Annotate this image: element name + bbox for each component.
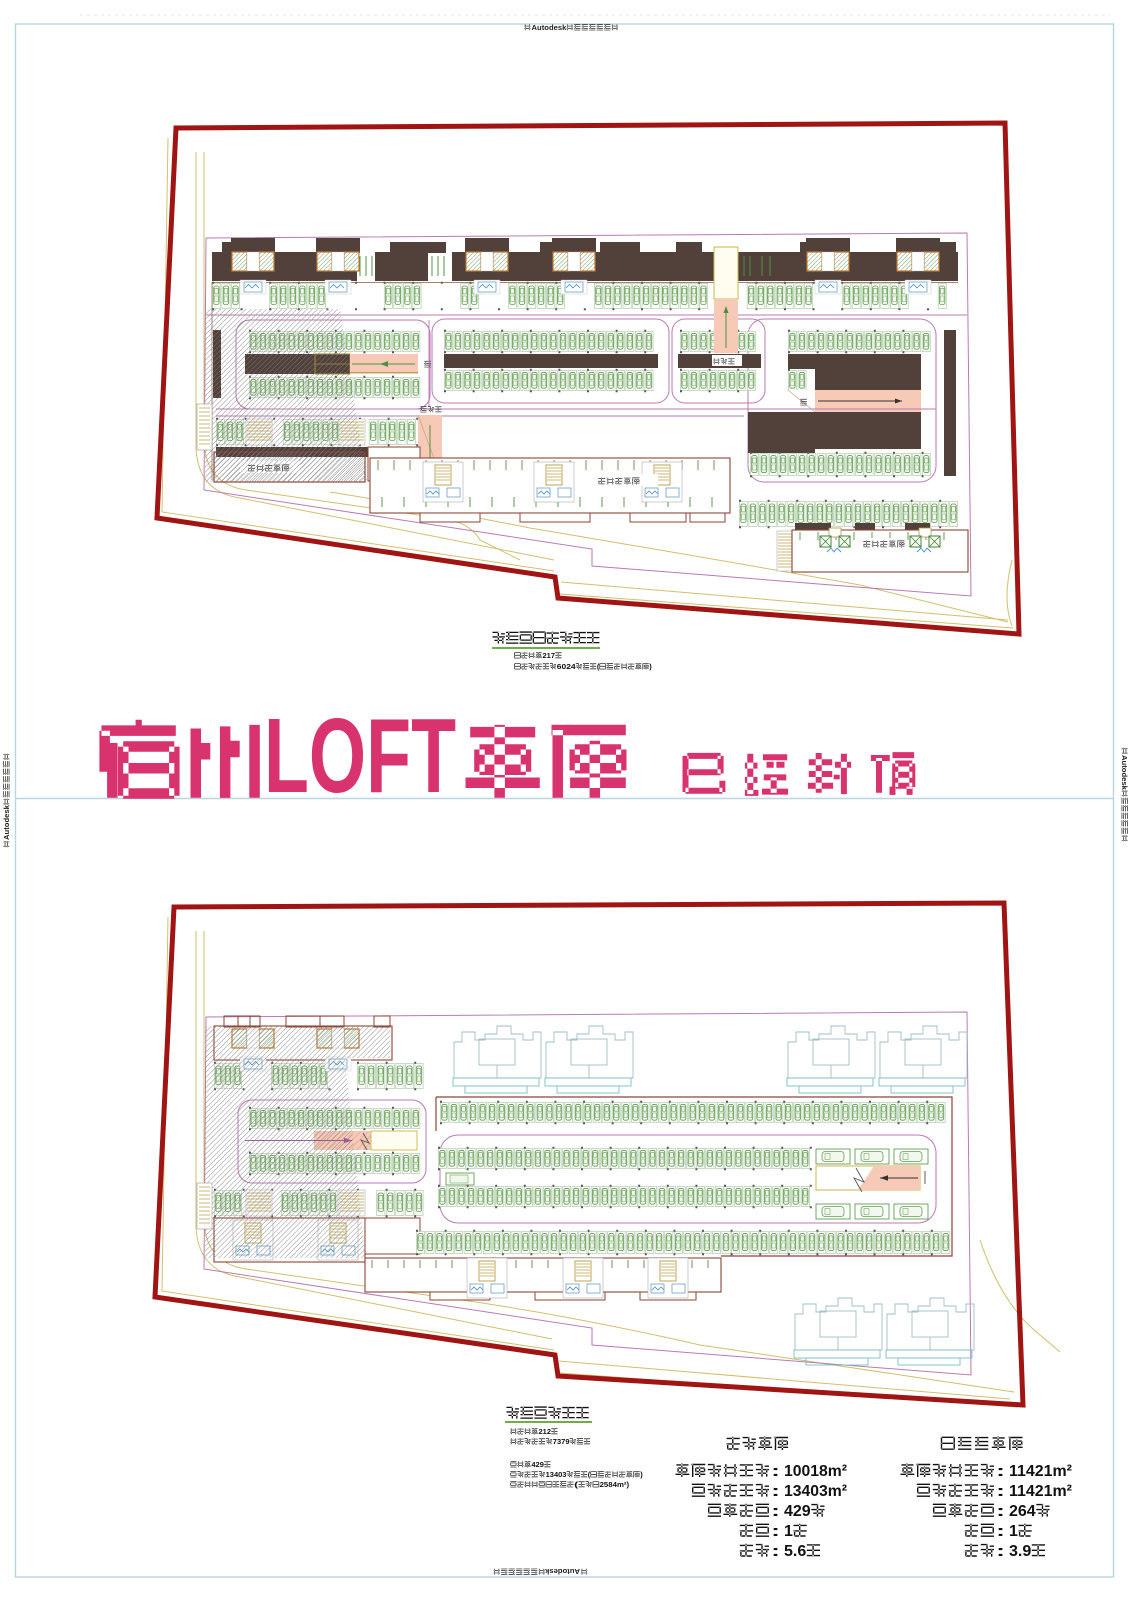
svg-text:429: 429 [784, 1503, 811, 1520]
svg-text::: : [771, 1503, 780, 1520]
svg-text::: : [996, 1503, 1005, 1520]
svg-text::: : [996, 1463, 1005, 1480]
svg-text:264: 264 [1009, 1503, 1036, 1520]
svg-text::: : [771, 1543, 780, 1560]
svg-text::: : [996, 1523, 1005, 1540]
svg-text:Autodesk: Autodesk [1120, 755, 1129, 791]
svg-text::: : [771, 1483, 780, 1500]
svg-text:212: 212 [539, 1427, 552, 1436]
svg-text:10018m²: 10018m² [784, 1463, 847, 1480]
svg-text:7379: 7379 [553, 1437, 570, 1446]
svg-text::: : [771, 1523, 780, 1540]
svg-text:1: 1 [784, 1523, 793, 1540]
svg-text:217: 217 [543, 651, 556, 660]
svg-text:5.6: 5.6 [784, 1543, 806, 1560]
svg-text:11421m²: 11421m² [1009, 1483, 1072, 1500]
svg-text:1: 1 [1009, 1523, 1018, 1540]
svg-text:11421m²: 11421m² [1009, 1463, 1072, 1480]
svg-text:6024: 6024 [557, 662, 577, 671]
svg-text:2584m²): 2584m²) [600, 1480, 630, 1489]
svg-text:13403: 13403 [546, 1470, 567, 1479]
svg-text:13403m²: 13403m² [784, 1483, 847, 1500]
svg-text:429: 429 [531, 1460, 544, 1469]
svg-text:3.9: 3.9 [1009, 1543, 1031, 1560]
svg-text:Autodesk: Autodesk [532, 23, 568, 32]
svg-text::: : [996, 1543, 1005, 1560]
svg-text:LOFT: LOFT [264, 697, 456, 815]
svg-text:Autodesk: Autodesk [2, 804, 11, 840]
svg-text::: : [996, 1483, 1005, 1500]
svg-text::: : [771, 1463, 780, 1480]
svg-text:Autodesk: Autodesk [544, 1567, 580, 1576]
